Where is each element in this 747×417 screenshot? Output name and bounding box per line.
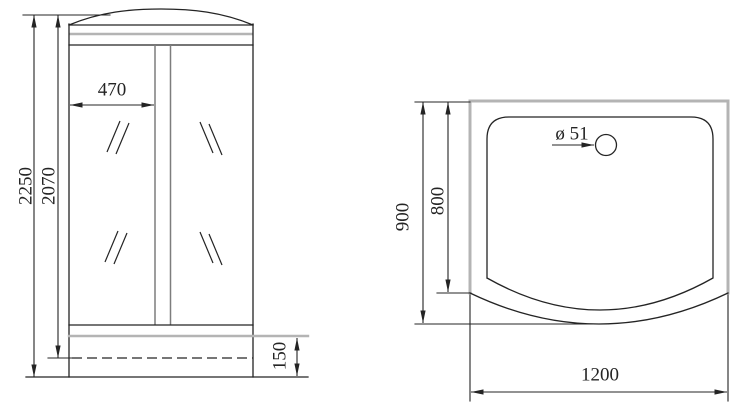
drawing-canvas: 2250 2070 470 150 ø 51 900 800 1200 xyxy=(0,0,747,417)
dim-label-outer-depth: 900 xyxy=(393,203,414,232)
dim-label-inner-height: 2070 xyxy=(39,167,60,205)
technical-drawing: 2250 2070 470 150 ø 51 900 800 1200 xyxy=(0,0,747,417)
dim-label-door-width: 470 xyxy=(98,80,127,101)
glass-hatch-right-upper xyxy=(200,122,222,155)
dim-label-inner-depth: 800 xyxy=(428,187,449,216)
glass-hatch-left-lower xyxy=(105,231,127,264)
cabin-dome-curve xyxy=(69,9,253,25)
drain-hole xyxy=(596,135,617,156)
tray-front-outer-curve xyxy=(470,293,728,324)
front-view: 2250 2070 470 150 xyxy=(16,9,308,377)
glass-hatch-left-upper xyxy=(107,121,129,154)
top-view: ø 51 900 800 1200 xyxy=(393,101,728,401)
dim-label-total-height: 2250 xyxy=(16,167,37,205)
tray-outer-edges xyxy=(470,101,728,293)
tray-basin-outline xyxy=(487,117,713,310)
dim-label-width: 1200 xyxy=(581,365,619,386)
dim-label-drain-diameter: ø 51 xyxy=(555,124,588,145)
dim-label-tray-height: 150 xyxy=(270,342,291,371)
glass-hatch-right-lower xyxy=(200,232,222,265)
